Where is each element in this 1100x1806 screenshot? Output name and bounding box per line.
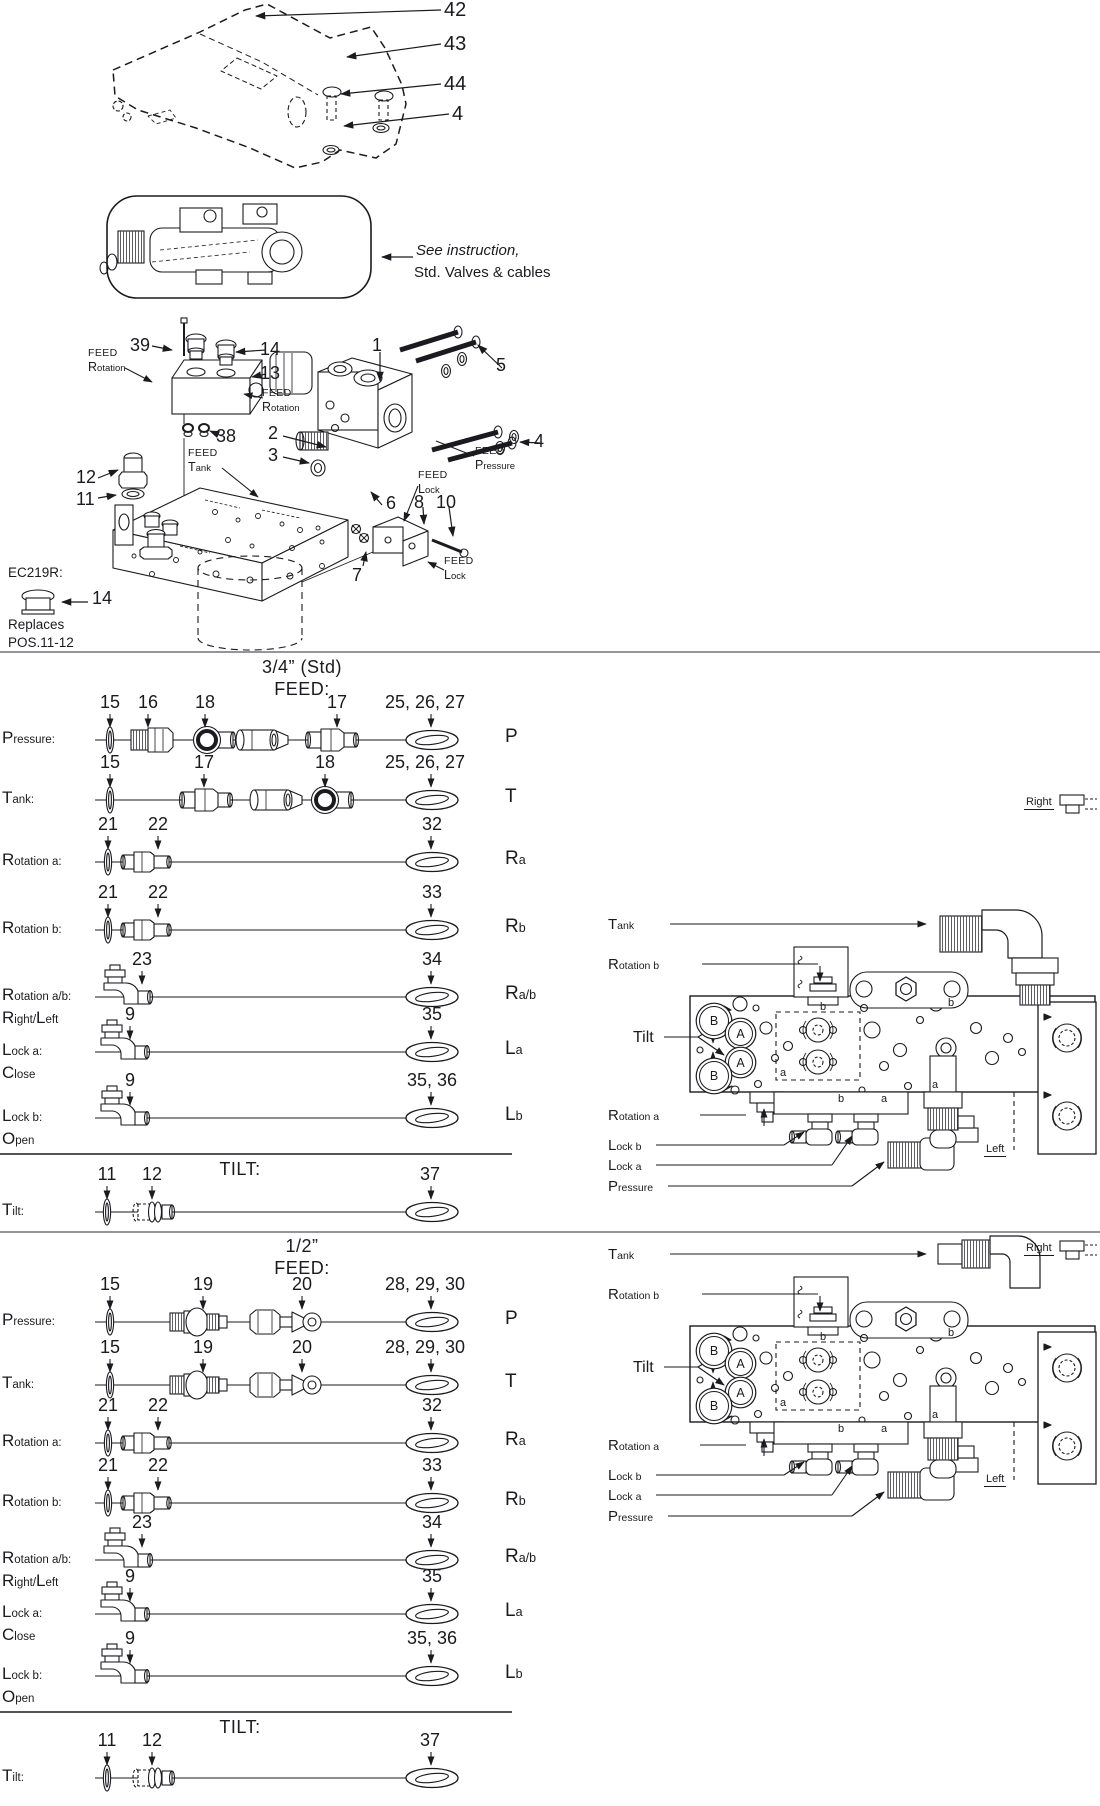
port-letter: La bbox=[505, 1601, 523, 1621]
port-label: a bbox=[932, 1410, 938, 1422]
port-letter: T bbox=[505, 1372, 517, 1392]
callout-28, 29, 30: 28, 29, 30 bbox=[385, 1275, 465, 1294]
label-initial: P bbox=[2, 1310, 13, 1329]
row-label: Rotation b: bbox=[2, 919, 62, 938]
port-label: b bbox=[948, 1328, 954, 1340]
diagram-lock-b-label: Lock b bbox=[608, 1468, 641, 1485]
label-rest: a bbox=[516, 1605, 523, 1619]
callout-15: 15 bbox=[100, 693, 120, 712]
label-rest: ank bbox=[617, 920, 634, 932]
diagram-rotation-a-label: Rotation a bbox=[608, 1108, 659, 1125]
callout-15: 15 bbox=[100, 1338, 120, 1357]
callout-9: 9 bbox=[125, 1071, 135, 1090]
port-label: b bbox=[838, 1424, 844, 1436]
callout-2: 2 bbox=[268, 424, 278, 443]
label-initial: R bbox=[608, 1107, 619, 1124]
diagram-tilt-label: Tilt bbox=[633, 1030, 654, 1047]
label-rest: ock a: bbox=[11, 1046, 42, 1058]
callout-42: 42 bbox=[444, 0, 466, 21]
callout-17: 17 bbox=[327, 693, 347, 712]
label-rest: ressure: bbox=[13, 734, 55, 746]
diagram-left-label: Left bbox=[984, 1144, 1006, 1157]
feed-header: FEED: bbox=[274, 680, 330, 699]
callout-15: 15 bbox=[100, 1275, 120, 1294]
port-letter: Ra bbox=[505, 1430, 526, 1450]
label-initial: L bbox=[505, 1104, 516, 1125]
tilt-port-circle: B bbox=[699, 1336, 729, 1366]
row-label: Rotation a: bbox=[2, 1432, 62, 1451]
label-rest: a/b bbox=[519, 1551, 536, 1565]
ec-note-callout: 14 bbox=[92, 589, 112, 608]
diagram-left-label: Left bbox=[984, 1474, 1006, 1487]
callout-16: 16 bbox=[138, 693, 158, 712]
label-initial: R bbox=[505, 848, 519, 869]
diagram-pressure-label: Pressure bbox=[608, 1179, 653, 1196]
row-label: Rotation a/b: bbox=[2, 986, 71, 1005]
label-initial: R bbox=[2, 850, 14, 869]
label-initial: L bbox=[505, 1662, 516, 1683]
tilt-port-circle: B bbox=[699, 1061, 729, 1091]
port-label: b bbox=[820, 1002, 826, 1014]
label-initial: T bbox=[608, 1246, 617, 1263]
row-label: Tilt: bbox=[2, 1767, 24, 1786]
callout-25, 26, 27: 25, 26, 27 bbox=[385, 693, 465, 712]
row-label: Lock a: bbox=[2, 1603, 42, 1622]
callout-13: 13 bbox=[260, 364, 280, 383]
label-initial: O bbox=[2, 1129, 15, 1148]
port-letter: La bbox=[505, 1039, 523, 1059]
callout-22: 22 bbox=[148, 1396, 168, 1415]
port-letter: Ra bbox=[505, 849, 526, 869]
label-initial: L bbox=[444, 568, 451, 582]
callout-11: 11 bbox=[76, 490, 95, 509]
port-label: a bbox=[881, 1424, 887, 1436]
callout-9: 9 bbox=[125, 1629, 135, 1648]
label-rest: ank: bbox=[12, 1379, 34, 1391]
row-sublabel: Right/Left bbox=[2, 1572, 58, 1591]
label-initial: P bbox=[505, 1308, 518, 1329]
tilt-port-circle: A bbox=[728, 1050, 753, 1075]
tilt-port-circle: A bbox=[728, 1380, 753, 1405]
feed-word: FEED bbox=[444, 556, 474, 567]
label-rest: ank bbox=[617, 1250, 634, 1262]
tilt-port-circle: A bbox=[728, 1021, 753, 1046]
label-initial: P bbox=[608, 1178, 618, 1195]
callout-23: 23 bbox=[132, 950, 152, 969]
label-rest: ressure bbox=[618, 1512, 653, 1524]
diagram-rotation-a-label: Rotation a bbox=[608, 1438, 659, 1455]
parts-catalog-page: See instruction, Std. Valves & cables EC… bbox=[0, 0, 1100, 1806]
label-rest: ank bbox=[196, 463, 211, 474]
label-rest: lose bbox=[14, 1069, 35, 1081]
label-rest: otation a bbox=[619, 1111, 659, 1123]
label-rest: ock bbox=[451, 571, 466, 582]
feed-port-label: FEEDTank bbox=[188, 448, 218, 476]
label-initial: L bbox=[36, 1571, 45, 1590]
row-sublabel: Right/Left bbox=[2, 1009, 58, 1028]
callout-11: 11 bbox=[98, 1731, 117, 1750]
feed-port-label: FEEDRotation bbox=[88, 348, 126, 376]
label-rest: ock a bbox=[616, 1161, 641, 1173]
callout-39: 39 bbox=[130, 336, 150, 355]
row-sublabel: Close bbox=[2, 1626, 35, 1645]
feed-word: FEED bbox=[262, 388, 300, 399]
port-label: a bbox=[881, 1094, 887, 1106]
callout-34: 34 bbox=[422, 1513, 442, 1532]
label-rest: ressure: bbox=[13, 1316, 55, 1328]
tilt-header: TILT: bbox=[219, 1718, 260, 1737]
label-initial: R bbox=[505, 1546, 519, 1567]
label-initial: R bbox=[2, 1491, 14, 1510]
label-initial: O bbox=[2, 1687, 15, 1706]
callout-12: 12 bbox=[142, 1165, 162, 1184]
label-rest: pen bbox=[15, 1135, 34, 1147]
callout-21: 21 bbox=[98, 883, 118, 902]
diagram-lock-b-label: Lock b bbox=[608, 1138, 641, 1155]
callout-22: 22 bbox=[148, 1456, 168, 1475]
label-rest: a/b bbox=[519, 988, 536, 1002]
label-initial: R bbox=[2, 1008, 14, 1027]
port-label: b bbox=[820, 1332, 826, 1344]
label-rest: ilt: bbox=[12, 1206, 24, 1218]
label-initial: R bbox=[505, 1429, 519, 1450]
port-label: a bbox=[932, 1080, 938, 1092]
callout-37: 37 bbox=[420, 1165, 440, 1184]
row-label: Rotation a: bbox=[2, 851, 62, 870]
callout-11: 11 bbox=[98, 1165, 117, 1184]
callout-4: 4 bbox=[452, 104, 463, 125]
label-initial: R bbox=[2, 985, 14, 1004]
label-rest: ock a: bbox=[11, 1608, 42, 1620]
size-header: 1/2” bbox=[285, 1237, 318, 1256]
port-letter: T bbox=[505, 787, 517, 807]
callout-32: 32 bbox=[422, 1396, 442, 1415]
label-rest: b bbox=[519, 921, 526, 935]
label-rest: ank: bbox=[12, 794, 34, 806]
callout-35, 36: 35, 36 bbox=[407, 1629, 457, 1648]
label-rest: otation a bbox=[619, 1441, 659, 1453]
label-initial: T bbox=[505, 1371, 517, 1392]
ec-note-replaces: Replaces bbox=[8, 618, 64, 632]
diagram-rotation-b-label: Rotation b bbox=[608, 957, 659, 974]
label-initial: R bbox=[2, 918, 14, 937]
port-letter: Lb bbox=[505, 1105, 523, 1125]
label-rest: ight/ bbox=[14, 1014, 36, 1026]
label-rest: ock b: bbox=[11, 1670, 42, 1682]
label-initial: P bbox=[608, 1508, 618, 1525]
feed-word: FEED bbox=[418, 470, 448, 481]
port-label: b bbox=[948, 998, 954, 1010]
label-initial: R bbox=[505, 916, 519, 937]
callout-18: 18 bbox=[315, 753, 335, 772]
label-initial: L bbox=[505, 1600, 516, 1621]
ec-note-positions: POS.11-12 bbox=[8, 636, 74, 650]
port-letter: Lb bbox=[505, 1663, 523, 1683]
label-initial: R bbox=[2, 1431, 14, 1450]
callout-35, 36: 35, 36 bbox=[407, 1071, 457, 1090]
label-rest: ressure bbox=[483, 461, 515, 472]
callout-33: 33 bbox=[422, 883, 442, 902]
label-initial: L bbox=[36, 1008, 45, 1027]
label-initial: T bbox=[2, 1373, 12, 1392]
diagram-lock-a-label: Lock a bbox=[608, 1488, 641, 1505]
callout-3: 3 bbox=[268, 446, 278, 465]
label-initial: R bbox=[88, 360, 97, 374]
port-letter: Rb bbox=[505, 917, 526, 937]
label-initial: R bbox=[2, 1571, 14, 1590]
row-label: Tank: bbox=[2, 789, 34, 808]
callout-12: 12 bbox=[142, 1731, 162, 1750]
callout-35: 35 bbox=[422, 1567, 442, 1586]
callout-17: 17 bbox=[194, 753, 214, 772]
label-rest: ock b bbox=[616, 1471, 641, 1483]
feed-port-label: FEEDRotation bbox=[262, 388, 300, 416]
callout-12: 12 bbox=[76, 468, 96, 487]
label-rest: ock bbox=[425, 485, 440, 496]
diagram-rotation-b-label: Rotation b bbox=[608, 1287, 659, 1304]
label-initial: T bbox=[2, 788, 12, 807]
label-rest: otation bbox=[97, 363, 126, 374]
label-rest: otation b: bbox=[14, 924, 61, 936]
feed-word: FEED bbox=[88, 348, 126, 359]
label-initial: R bbox=[608, 1286, 619, 1303]
label-rest: eft bbox=[46, 1577, 59, 1589]
callout-7: 7 bbox=[352, 566, 362, 585]
callout-28, 29, 30: 28, 29, 30 bbox=[385, 1338, 465, 1357]
callout-22: 22 bbox=[148, 815, 168, 834]
row-label: Rotation a/b: bbox=[2, 1549, 71, 1568]
row-sublabel: Open bbox=[2, 1130, 34, 1149]
callout-23: 23 bbox=[132, 1513, 152, 1532]
callout-9: 9 bbox=[125, 1567, 135, 1586]
callout-21: 21 bbox=[98, 1456, 118, 1475]
feed-word: FEED bbox=[475, 446, 515, 457]
callout-1: 1 bbox=[372, 336, 382, 355]
port-letter: Ra/b bbox=[505, 1547, 536, 1567]
port-letter: Rb bbox=[505, 1490, 526, 1510]
row-label: Tank: bbox=[2, 1374, 34, 1393]
diagram-tank-label: Tank bbox=[608, 917, 634, 934]
label-initial: T bbox=[2, 1200, 12, 1219]
label-initial: T bbox=[608, 916, 617, 933]
label-rest: ilt: bbox=[12, 1772, 24, 1784]
instruction-note-line1: See instruction, bbox=[416, 243, 519, 259]
label-initial: P bbox=[2, 728, 13, 747]
label-rest: b bbox=[516, 1667, 523, 1681]
label-rest: ight/ bbox=[14, 1577, 36, 1589]
row-sublabel: Open bbox=[2, 1688, 34, 1707]
label-initial: T bbox=[2, 1766, 12, 1785]
callout-20: 20 bbox=[292, 1275, 312, 1294]
label-rest: ock b bbox=[616, 1141, 641, 1153]
row-label: Pressure: bbox=[2, 1311, 55, 1330]
label-rest: b bbox=[519, 1494, 526, 1508]
label-rest: otation b bbox=[619, 960, 659, 972]
label-rest: b bbox=[516, 1109, 523, 1123]
label-rest: a bbox=[519, 1434, 526, 1448]
label-rest: otation b bbox=[619, 1290, 659, 1302]
row-label: Lock b: bbox=[2, 1107, 42, 1126]
port-label: a bbox=[780, 1398, 786, 1410]
callout-38: 38 bbox=[216, 427, 236, 446]
callout-20: 20 bbox=[292, 1338, 312, 1357]
callout-25, 26, 27: 25, 26, 27 bbox=[385, 753, 465, 772]
label-rest: ock b: bbox=[11, 1112, 42, 1124]
label-initial: L bbox=[505, 1038, 516, 1059]
diagram-right-label: Right bbox=[1024, 1243, 1054, 1256]
feed-port-label: FEEDLock bbox=[444, 556, 474, 584]
label-rest: ock a bbox=[616, 1491, 641, 1503]
label-layer: See instruction, Std. Valves & cables EC… bbox=[0, 0, 1100, 1806]
callout-35: 35 bbox=[422, 1005, 442, 1024]
row-label: Rotation b: bbox=[2, 1492, 62, 1511]
label-initial: R bbox=[505, 983, 519, 1004]
diagram-pressure-label: Pressure bbox=[608, 1509, 653, 1526]
callout-32: 32 bbox=[422, 815, 442, 834]
feed-port-label: FEEDLock bbox=[418, 470, 448, 498]
callout-21: 21 bbox=[98, 1396, 118, 1415]
label-initial: P bbox=[505, 726, 518, 747]
callout-33: 33 bbox=[422, 1456, 442, 1475]
label-initial: C bbox=[2, 1063, 14, 1082]
callout-18: 18 bbox=[195, 693, 215, 712]
row-label: Lock a: bbox=[2, 1041, 42, 1060]
label-rest: a bbox=[519, 853, 526, 867]
label-initial: R bbox=[262, 400, 271, 414]
callout-14: 14 bbox=[260, 340, 280, 359]
label-rest: otation a: bbox=[14, 856, 61, 868]
callout-19: 19 bbox=[193, 1338, 213, 1357]
callout-15: 15 bbox=[100, 753, 120, 772]
label-rest: otation a: bbox=[14, 1437, 61, 1449]
row-label: Pressure: bbox=[2, 729, 55, 748]
port-letter: Ra/b bbox=[505, 984, 536, 1004]
callout-44: 44 bbox=[444, 74, 466, 95]
port-label: a bbox=[780, 1068, 786, 1080]
size-header: 3/4” (Std) bbox=[262, 658, 342, 677]
callout-6: 6 bbox=[386, 494, 396, 513]
label-initial: T bbox=[505, 786, 517, 807]
callout-37: 37 bbox=[420, 1731, 440, 1750]
label-rest: lose bbox=[14, 1631, 35, 1643]
label-rest: otation a/b: bbox=[14, 1554, 71, 1566]
diagram-tilt-label: Tilt bbox=[633, 1360, 654, 1377]
instruction-note-line2: Std. Valves & cables bbox=[414, 265, 550, 281]
tilt-port-circle: B bbox=[699, 1391, 729, 1421]
label-initial: C bbox=[2, 1625, 14, 1644]
label-initial: R bbox=[608, 1437, 619, 1454]
label-rest: eft bbox=[46, 1014, 59, 1026]
port-letter: P bbox=[505, 727, 518, 747]
callout-4: 4 bbox=[534, 432, 544, 451]
label-initial: R bbox=[2, 1548, 14, 1567]
callout-22: 22 bbox=[148, 883, 168, 902]
label-initial: R bbox=[608, 956, 619, 973]
label-initial: L bbox=[418, 482, 425, 496]
label-rest: a bbox=[516, 1043, 523, 1057]
diagram-right-label: Right bbox=[1024, 797, 1054, 810]
callout-9: 9 bbox=[125, 1005, 135, 1024]
feed-port-label: FEEDPressure bbox=[475, 446, 515, 474]
row-sublabel: Close bbox=[2, 1064, 35, 1083]
tilt-header: TILT: bbox=[219, 1160, 260, 1179]
diagram-tank-label: Tank bbox=[608, 1247, 634, 1264]
tilt-port-circle: B bbox=[699, 1006, 729, 1036]
label-rest: ressure bbox=[618, 1182, 653, 1194]
label-rest: otation b: bbox=[14, 1497, 61, 1509]
label-rest: otation bbox=[271, 403, 300, 414]
tilt-port-circle: A bbox=[728, 1351, 753, 1376]
callout-21: 21 bbox=[98, 815, 118, 834]
ec-note-code: EC219R: bbox=[8, 566, 63, 580]
callout-43: 43 bbox=[444, 34, 466, 55]
diagram-lock-a-label: Lock a bbox=[608, 1158, 641, 1175]
callout-5: 5 bbox=[496, 356, 506, 375]
port-letter: P bbox=[505, 1309, 518, 1329]
label-initial: R bbox=[505, 1489, 519, 1510]
label-initial: T bbox=[188, 460, 196, 474]
callout-19: 19 bbox=[193, 1275, 213, 1294]
label-rest: otation a/b: bbox=[14, 991, 71, 1003]
row-label: Tilt: bbox=[2, 1201, 24, 1220]
callout-34: 34 bbox=[422, 950, 442, 969]
port-label: b bbox=[838, 1094, 844, 1106]
row-label: Lock b: bbox=[2, 1665, 42, 1684]
feed-word: FEED bbox=[188, 448, 218, 459]
label-rest: pen bbox=[15, 1693, 34, 1705]
